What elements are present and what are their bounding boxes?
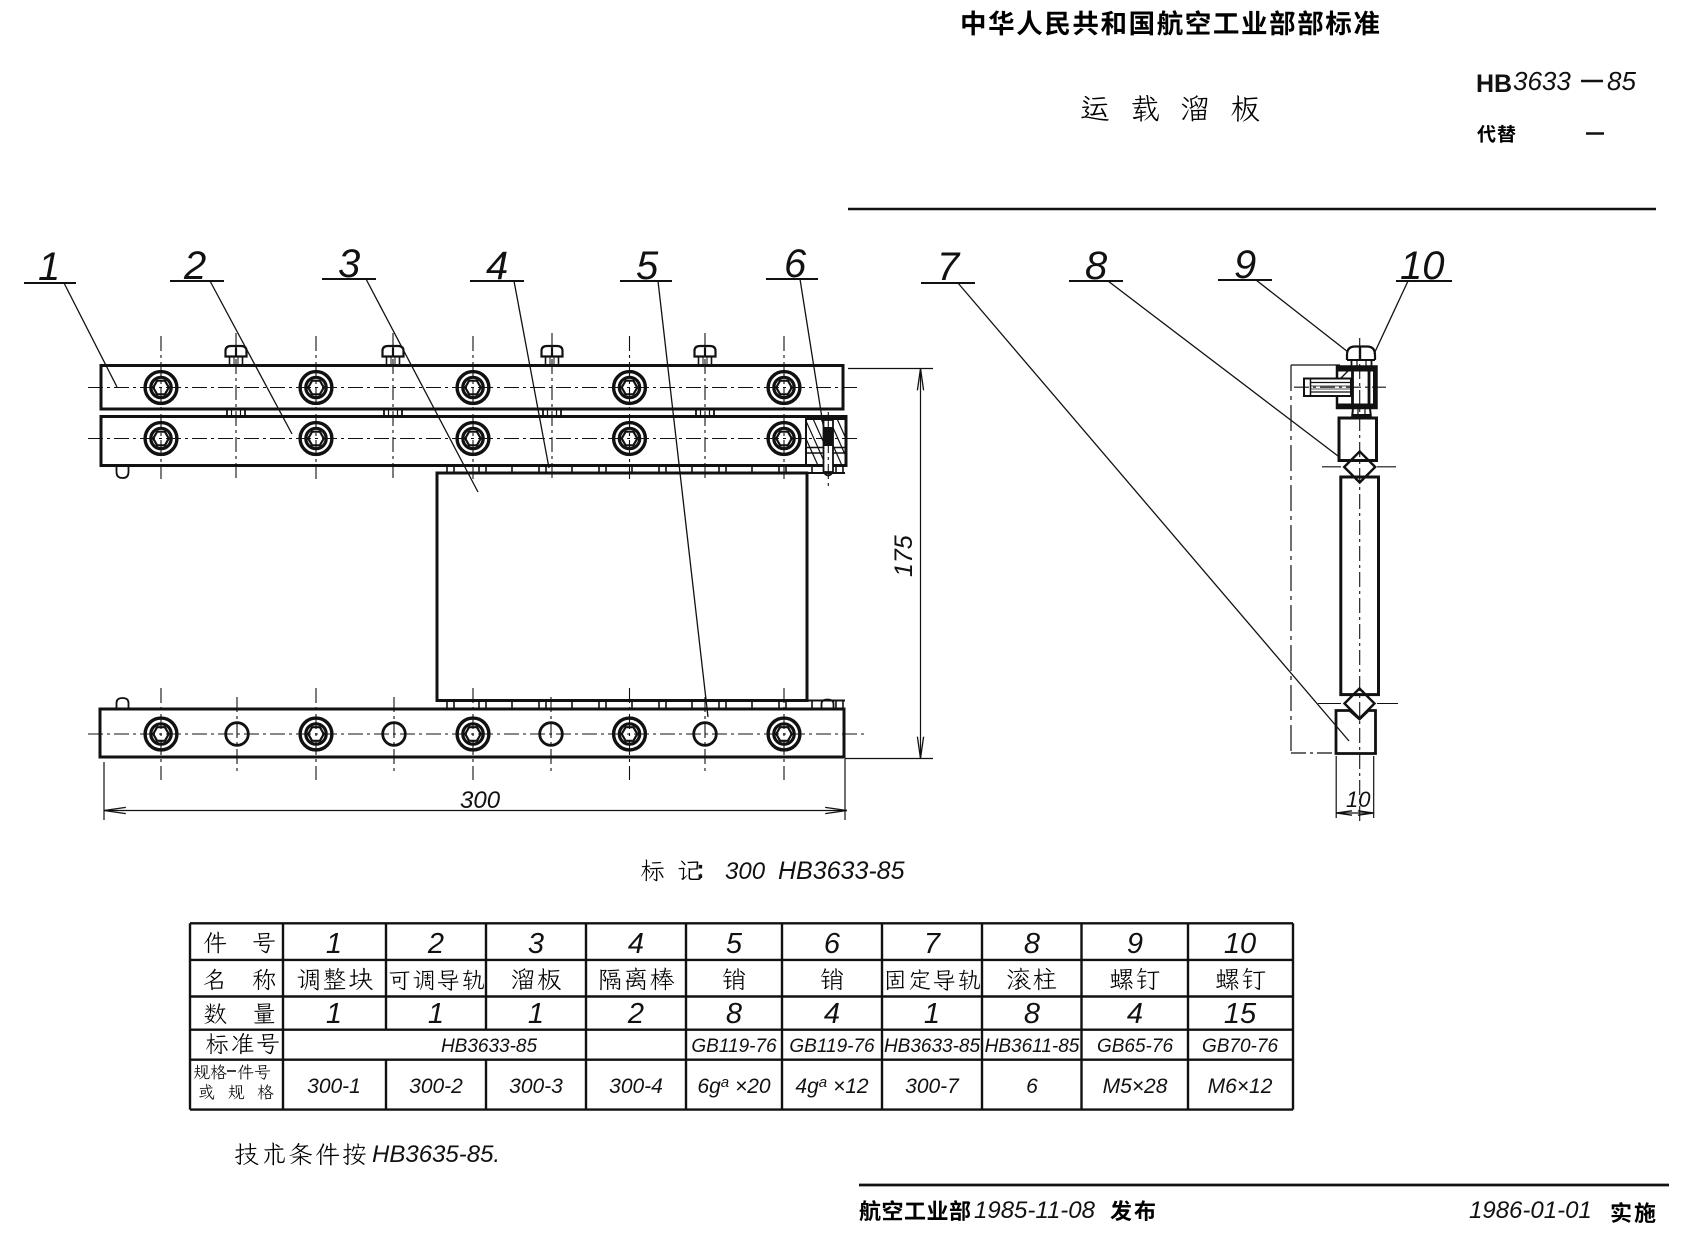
svg-text:8: 8 bbox=[1024, 998, 1040, 1030]
svg-text:300-3: 300-3 bbox=[509, 1075, 563, 1098]
svg-text:6ga ×20: 6ga ×20 bbox=[697, 1074, 770, 1098]
svg-text:GB119-76: GB119-76 bbox=[789, 1036, 875, 1057]
svg-text:M5×28: M5×28 bbox=[1103, 1075, 1168, 1098]
svg-text:10: 10 bbox=[1224, 928, 1256, 960]
svg-text:1: 1 bbox=[924, 998, 940, 1030]
svg-text:HB3611-85: HB3611-85 bbox=[985, 1036, 1080, 1057]
svg-text:4: 4 bbox=[1127, 998, 1143, 1030]
svg-text:1: 1 bbox=[326, 928, 342, 960]
svg-text:7: 7 bbox=[924, 928, 942, 960]
svg-text:1: 1 bbox=[326, 998, 342, 1030]
svg-text:300-1: 300-1 bbox=[307, 1075, 361, 1098]
svg-text:9: 9 bbox=[1127, 928, 1143, 960]
svg-text:HB3633-85: HB3633-85 bbox=[778, 857, 905, 885]
svg-text::: : bbox=[696, 854, 705, 884]
svg-text:3633: 3633 bbox=[1513, 66, 1571, 96]
svg-text:1: 1 bbox=[428, 998, 444, 1030]
svg-text:4: 4 bbox=[824, 998, 840, 1030]
svg-text:HB3635-85.: HB3635-85. bbox=[372, 1141, 500, 1168]
svg-text:300-7: 300-7 bbox=[905, 1075, 960, 1098]
svg-text:1986-01-01: 1986-01-01 bbox=[1469, 1197, 1592, 1224]
svg-text:300: 300 bbox=[725, 858, 766, 885]
svg-text:175: 175 bbox=[890, 535, 918, 577]
svg-text:GB70-76: GB70-76 bbox=[1202, 1036, 1278, 1057]
svg-text:300-2: 300-2 bbox=[409, 1075, 463, 1098]
svg-text:GB119-76: GB119-76 bbox=[691, 1036, 777, 1057]
svg-text:1985-11-08: 1985-11-08 bbox=[974, 1197, 1096, 1224]
svg-text:85: 85 bbox=[1607, 66, 1636, 96]
svg-text:2: 2 bbox=[627, 998, 644, 1030]
svg-text:HB3633-85: HB3633-85 bbox=[441, 1036, 538, 1057]
svg-text:15: 15 bbox=[1224, 998, 1257, 1030]
svg-text:8: 8 bbox=[1024, 928, 1040, 960]
svg-text:HB: HB bbox=[1476, 70, 1512, 98]
svg-text:6: 6 bbox=[1026, 1075, 1038, 1098]
svg-text:4: 4 bbox=[628, 928, 644, 960]
svg-text:2: 2 bbox=[427, 928, 444, 960]
svg-text:6: 6 bbox=[824, 928, 841, 960]
svg-text:1: 1 bbox=[528, 998, 544, 1030]
svg-text:HB3633-85: HB3633-85 bbox=[884, 1036, 981, 1057]
svg-text:300: 300 bbox=[460, 787, 501, 814]
svg-text:8: 8 bbox=[726, 998, 742, 1030]
svg-text:GB65-76: GB65-76 bbox=[1097, 1036, 1173, 1057]
svg-text:10: 10 bbox=[1346, 787, 1371, 812]
svg-text:3: 3 bbox=[528, 928, 544, 960]
svg-text:M6×12: M6×12 bbox=[1208, 1075, 1273, 1098]
svg-text:300-4: 300-4 bbox=[609, 1075, 663, 1098]
svg-text:4ga ×12: 4ga ×12 bbox=[795, 1074, 868, 1098]
svg-text:5: 5 bbox=[726, 928, 743, 960]
